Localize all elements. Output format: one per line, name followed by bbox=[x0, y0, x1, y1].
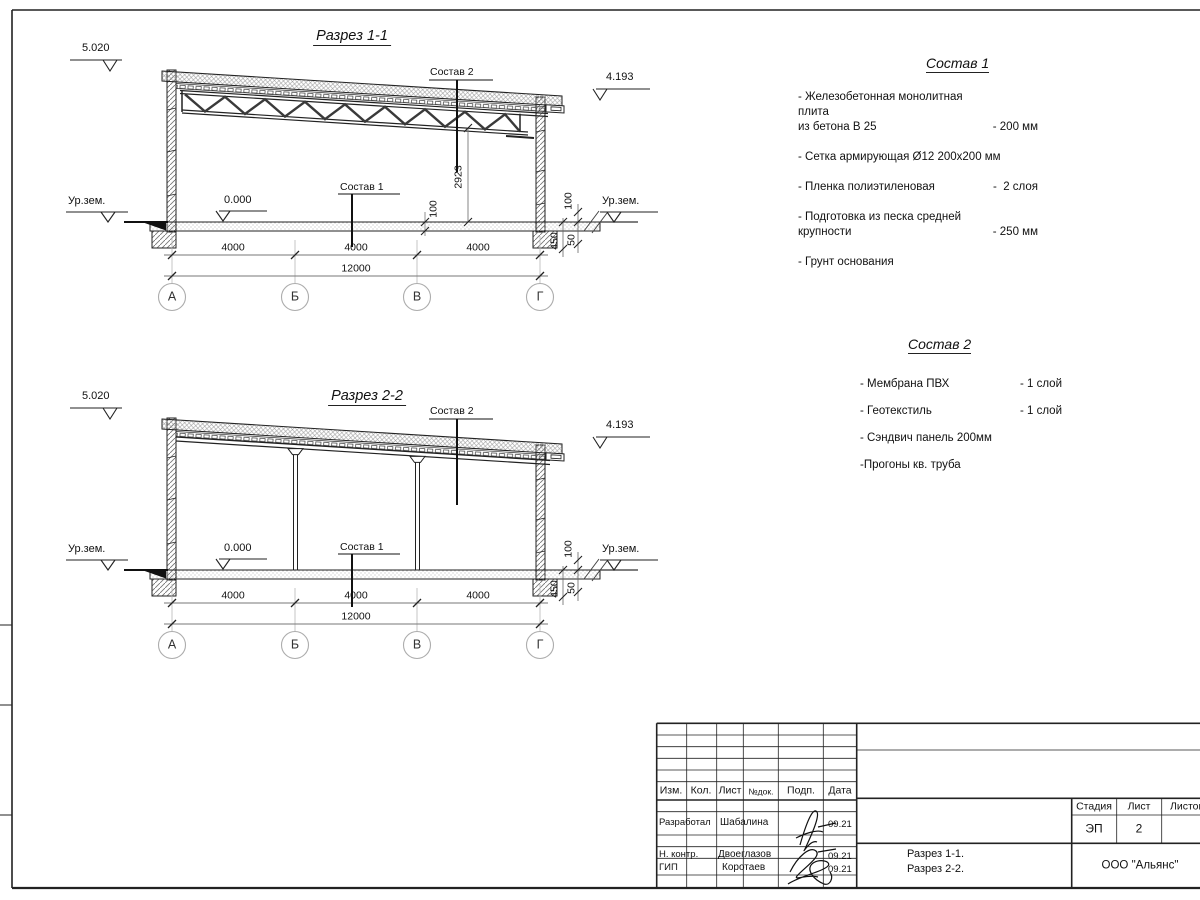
list-item: - Подготовка из песка средней крупности … bbox=[798, 210, 1038, 240]
titleblock-date: 09.21 bbox=[828, 850, 852, 863]
dim-label-foundation: 450 bbox=[549, 232, 562, 250]
titleblock-col-header: Лист bbox=[719, 785, 742, 798]
dim-label-bay: 4000 bbox=[466, 590, 489, 603]
titleblock-date: 09.21 bbox=[828, 863, 852, 876]
list-item: - Сетка армирующая Ø12 200х200 мм bbox=[798, 150, 1038, 165]
leader-label-floor: Состав 1 bbox=[340, 541, 384, 554]
titleblock-col-header: Дата bbox=[828, 785, 851, 798]
list-item: - Мембрана ПВХ - 1 слой bbox=[860, 377, 1062, 392]
section2-title: Разрез 2-2 bbox=[328, 388, 406, 406]
dim-label-total: 12000 bbox=[341, 611, 370, 624]
list-item: - Геотекстиль - 1 слой bbox=[860, 404, 1062, 419]
spec-item-value: - 2 слоя bbox=[987, 180, 1038, 195]
sheet-number: 2 bbox=[1136, 823, 1143, 836]
titleblock-name: Коротаев bbox=[722, 861, 765, 874]
dim-label-floor: 100 bbox=[428, 200, 441, 218]
spec-item-name: - Сетка армирующая Ø12 200х200 мм bbox=[798, 150, 1001, 165]
section1-title: Разрез 1-1 bbox=[313, 28, 391, 46]
dim-label-right: 100 bbox=[563, 192, 576, 210]
document-title: Разрез 1-1. Разрез 2-2. bbox=[907, 847, 964, 877]
spec-item-value: - 1 слой bbox=[1014, 404, 1062, 419]
spec-item-value: - 200 мм bbox=[987, 120, 1038, 135]
dim-label-bay: 4000 bbox=[221, 242, 244, 255]
spec2-list: - Мембрана ПВХ - 1 слой - Геотекстиль - … bbox=[860, 377, 1062, 485]
spec-item-name: - Грунт основания bbox=[798, 255, 894, 270]
spec-item-name: - Мембрана ПВХ bbox=[860, 377, 949, 392]
ground-level-label: Ур.зем. bbox=[68, 543, 105, 556]
titleblock-name: Двоеглазов bbox=[718, 848, 771, 861]
titleblock-role: Н. контр. bbox=[659, 848, 698, 861]
list-item: - Сэндвич панель 200мм bbox=[860, 431, 1062, 446]
zero-level-label: 0.000 bbox=[224, 194, 252, 207]
spec-item-value: - 250 мм bbox=[987, 225, 1038, 240]
list-item: - Железобетонная монолитная плита из бет… bbox=[798, 90, 1038, 135]
titleblock-role: Разработал bbox=[659, 816, 711, 829]
spec-item-name: -Прогоны кв. труба bbox=[860, 458, 961, 473]
elevation-mark-label: 4.193 bbox=[606, 71, 634, 84]
dim-label-sand: 50 bbox=[566, 234, 579, 246]
stage-value: ЭП bbox=[1085, 823, 1102, 836]
titleblock-col-header: №док. bbox=[749, 786, 774, 799]
dim-label-height: 2923 bbox=[453, 165, 466, 188]
elevation-mark-label: 5.020 bbox=[82, 42, 110, 55]
leader-label-floor: Состав 1 bbox=[340, 181, 384, 194]
titleblock-col-header: Кол. bbox=[691, 785, 712, 798]
dim-label-sand: 50 bbox=[566, 582, 579, 594]
spec1-list: - Железобетонная монолитная плита из бет… bbox=[798, 90, 1038, 285]
axis-bubble-label: А bbox=[168, 291, 176, 304]
dim-label-bay: 4000 bbox=[466, 242, 489, 255]
spec-item-name: - Железобетонная монолитная плита из бет… bbox=[798, 90, 987, 135]
dim-label-right: 100 bbox=[563, 540, 576, 558]
dim-label-total: 12000 bbox=[341, 263, 370, 276]
titleblock-name: Шабалина bbox=[720, 816, 768, 829]
spec-item-name: - Геотекстиль bbox=[860, 404, 932, 419]
spec-item-name: - Пленка полиэтиленовая bbox=[798, 180, 935, 195]
ground-level-label: Ур.зем. bbox=[68, 195, 105, 208]
axis-bubble-label: Б bbox=[291, 291, 299, 304]
titleblock-col-header: Подп. bbox=[787, 785, 815, 798]
list-item: - Грунт основания bbox=[798, 255, 1038, 270]
axis-bubble-label: Б bbox=[291, 639, 299, 652]
titleblock-role: ГИП bbox=[659, 861, 678, 874]
spec-item-value: - 1 слой bbox=[1014, 377, 1062, 392]
spec1-title: Состав 1 bbox=[926, 55, 989, 73]
dim-label-foundation: 450 bbox=[549, 580, 562, 598]
dim-label-bay: 4000 bbox=[344, 590, 367, 603]
titleblock-col-header: Изм. bbox=[660, 785, 683, 798]
zero-level-label: 0.000 bbox=[224, 542, 252, 555]
drawing-sheet: { "sheet": { "section1": { "title": "Раз… bbox=[0, 0, 1200, 900]
sheets-header: Листов bbox=[1170, 801, 1200, 814]
elevation-mark-label: 5.020 bbox=[82, 390, 110, 403]
list-item: - Пленка полиэтиленовая - 2 слоя bbox=[798, 180, 1038, 195]
company-name: ООО "Альянс" bbox=[1102, 860, 1179, 873]
ground-level-label: Ур.зем. bbox=[602, 195, 639, 208]
leader-label-roof: Состав 2 bbox=[430, 405, 474, 418]
spec2-title: Состав 2 bbox=[908, 336, 971, 354]
dim-label-bay: 4000 bbox=[221, 590, 244, 603]
axis-bubble-label: Г bbox=[537, 639, 544, 652]
sheet-header: Лист bbox=[1128, 801, 1151, 814]
elevation-mark-label: 4.193 bbox=[606, 419, 634, 432]
spec-item-name: - Подготовка из песка средней крупности bbox=[798, 210, 961, 240]
axis-bubble-label: Г bbox=[537, 291, 544, 304]
leader-label-roof: Состав 2 bbox=[430, 66, 474, 79]
stage-header: Стадия bbox=[1076, 801, 1112, 814]
dim-label-bay: 4000 bbox=[344, 242, 367, 255]
titleblock-date: 09.21 bbox=[828, 818, 852, 831]
list-item: -Прогоны кв. труба bbox=[860, 458, 1062, 473]
spec-item-name: - Сэндвич панель 200мм bbox=[860, 431, 992, 446]
ground-level-label: Ур.зем. bbox=[602, 543, 639, 556]
axis-bubble-label: В bbox=[413, 291, 421, 304]
axis-bubble-label: А bbox=[168, 639, 176, 652]
axis-bubble-label: В bbox=[413, 639, 421, 652]
